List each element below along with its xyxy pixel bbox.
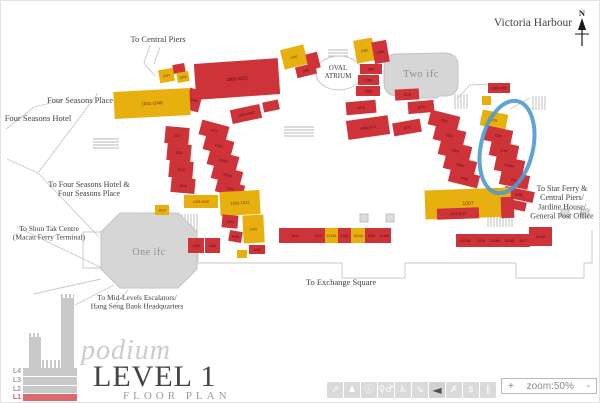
shop-block[interactable]	[529, 227, 552, 246]
shop-1014A[interactable]: 1014A	[351, 228, 365, 243]
shop-1096-1097[interactable]: 1096-1097	[488, 83, 510, 93]
shop-1089[interactable]: 1089	[356, 86, 380, 96]
logo-colonnade	[42, 360, 61, 368]
shop-1011-1012[interactable]: 1011-1012	[437, 207, 479, 219]
shop-1036[interactable]: 1036	[249, 245, 265, 254]
shop-1014[interactable]: 1014	[338, 228, 351, 243]
shop-block[interactable]	[194, 58, 280, 100]
shop-block[interactable]	[155, 205, 169, 215]
shop-1078[interactable]: 1078	[395, 88, 420, 100]
restroom-icon[interactable]: ♀♂	[378, 382, 394, 398]
shop-block[interactable]	[392, 119, 422, 137]
shop-block[interactable]	[158, 68, 175, 83]
shop-1031-1032[interactable]: 1031-1032	[219, 190, 260, 216]
level-l2[interactable]: L2	[7, 386, 21, 394]
logo-short-tower	[29, 337, 41, 368]
logo-short-tower-crown	[29, 333, 41, 337]
label-four-seasons-place: Four Seasons Place	[47, 95, 113, 105]
shop-block[interactable]	[176, 71, 190, 83]
shop-block[interactable]	[358, 75, 379, 85]
accessibility-icon[interactable]: ♿	[395, 382, 411, 398]
shop-1033[interactable]: 1033	[221, 214, 238, 228]
level-l1-bar[interactable]	[23, 394, 77, 401]
facility-toolbar: ⇗♟ⓘ♀♂♿⇘◄✗$∥	[327, 382, 496, 398]
shop-block[interactable]	[205, 238, 220, 253]
shop-1040[interactable]: 1040	[205, 238, 220, 253]
shop-1059-1062[interactable]: 1059-1062	[230, 104, 262, 124]
kiosk-square	[386, 214, 394, 222]
shop-block[interactable]	[395, 88, 420, 100]
shop-1076[interactable]: 1076	[345, 100, 376, 116]
label-to-central-piers: To Central Piers	[130, 34, 185, 44]
shop-block[interactable]	[482, 96, 491, 105]
shop-1010[interactable]: 1010	[155, 205, 169, 215]
logo-tall-tower	[61, 298, 74, 368]
level-l2-bar[interactable]	[23, 386, 77, 393]
shop-1041-1048[interactable]: 1041-1048	[113, 88, 190, 119]
shop-block[interactable]	[237, 250, 247, 258]
shop-block[interactable]	[221, 214, 238, 228]
escalator-down-icon[interactable]: ⇘	[412, 382, 428, 398]
atm-icon[interactable]: $	[463, 382, 479, 398]
shop-block[interactable]	[228, 230, 243, 243]
shop-1057[interactable]: 1057	[158, 68, 175, 83]
shop-1016A[interactable]: 1016A	[488, 234, 502, 247]
shop-1039[interactable]: 1039	[188, 238, 204, 253]
page-title: LEVEL 1	[93, 360, 216, 394]
shop-block[interactable]	[488, 83, 510, 93]
one-ifc-label: One ifc	[132, 247, 165, 258]
shop-1058[interactable]: 1058	[176, 71, 190, 83]
level-l4-bar[interactable]	[23, 368, 77, 376]
shop-1025-1030[interactable]: 1025-1030	[184, 195, 218, 208]
zoom-level-label: zoom:50%	[520, 381, 581, 392]
lift-icon[interactable]: ✗	[446, 382, 462, 398]
shop-1016[interactable]: 1016	[474, 234, 488, 247]
shop-1035[interactable]: 1035	[242, 214, 264, 243]
label-to-star-ferry: To Star Ferry &Central Piers/Jardine Hou…	[530, 184, 594, 221]
compass-n-label: N	[579, 8, 586, 18]
shop-block[interactable]	[113, 88, 190, 119]
shop-1088[interactable]: 1088	[358, 75, 379, 85]
shop-block[interactable]	[378, 228, 391, 243]
shop-1021[interactable]: 1021	[164, 126, 189, 145]
shop-unit[interactable]	[501, 197, 515, 218]
zoom-in-button[interactable]: +	[502, 381, 520, 392]
zoom-out-button[interactable]: -	[581, 381, 596, 392]
shop-block[interactable]	[242, 214, 264, 243]
shop-1013[interactable]: 1013	[311, 228, 325, 243]
shop-unit[interactable]	[237, 250, 247, 258]
shop-unit[interactable]	[262, 99, 280, 112]
shop-block[interactable]	[325, 228, 338, 243]
floor-plan-subtitle: FLOOR PLAN	[123, 390, 231, 402]
level-l3-bar[interactable]	[23, 377, 77, 385]
shop-block[interactable]	[338, 228, 351, 243]
shop-block[interactable]	[166, 143, 191, 162]
shop-block[interactable]	[502, 234, 516, 247]
shop-block[interactable]	[230, 104, 262, 124]
gates-icon[interactable]: ∥	[480, 382, 496, 398]
central-piers-bridge-path	[144, 45, 160, 76]
shop-block[interactable]	[501, 197, 515, 218]
shop-block[interactable]	[184, 195, 218, 208]
shop-block[interactable]	[168, 160, 193, 179]
level-l1[interactable]: L1	[7, 394, 21, 402]
stairs-icon	[533, 96, 545, 110]
shop-block[interactable]	[356, 86, 380, 96]
zoom-control: + zoom:50% -	[501, 378, 597, 394]
north-arrow: N	[575, 8, 589, 46]
shop-block[interactable]	[346, 115, 390, 140]
two-ifc-label: Two ifc	[403, 69, 439, 80]
stairs-icon	[455, 94, 467, 109]
shop-1016B[interactable]: 1016B	[502, 234, 516, 247]
shop-1079[interactable]: 1079	[408, 100, 435, 114]
label-four-seasons-hotel: Four Seasons Hotel	[5, 113, 72, 123]
shop-1019[interactable]: 1019	[168, 160, 193, 179]
shop-1069-1071[interactable]: 1069-1071	[346, 115, 390, 140]
shop-block[interactable]	[516, 234, 530, 247]
stairs-icon	[93, 139, 119, 148]
info-icon[interactable]: ⓘ	[361, 382, 377, 398]
stairs-icon	[284, 127, 314, 136]
people-icon[interactable]: ♟	[344, 382, 360, 398]
shop-block[interactable]	[311, 228, 325, 243]
shop-1020[interactable]: 1020	[166, 143, 191, 162]
shop-block[interactable]	[353, 38, 376, 64]
escalator-up-icon[interactable]: ⇗	[327, 382, 343, 398]
you-are-here-icon[interactable]: ◄	[429, 382, 445, 398]
shop-1063-1072[interactable]: 1063-1072	[194, 58, 280, 100]
shop-block[interactable]	[360, 64, 382, 74]
shop-block[interactable]	[437, 207, 479, 219]
shop-1017A[interactable]: 1017A	[529, 227, 552, 246]
shop-1018[interactable]: 1018	[170, 177, 195, 194]
shop-block[interactable]	[188, 238, 204, 253]
shop-block[interactable]	[219, 190, 260, 216]
shop-block[interactable]	[164, 126, 189, 145]
label-victoria-harbour: Victoria Harbour	[494, 17, 572, 29]
shop-1015A[interactable]: 1015A	[378, 228, 391, 243]
shop-block[interactable]	[456, 234, 474, 247]
shop-block[interactable]	[279, 228, 311, 243]
shop-unit[interactable]	[482, 96, 491, 105]
level-l3[interactable]: L3	[7, 377, 21, 385]
shop-1073[interactable]: 1073	[392, 119, 422, 137]
floor-plan-page: Two ifc One ifc 1057105810491063-1072104…	[0, 0, 600, 403]
kiosk-square	[360, 214, 368, 222]
shop-block[interactable]	[351, 228, 365, 243]
shop-1015[interactable]: 1015	[365, 228, 378, 243]
compass-needle-icon	[578, 18, 586, 30]
shop-1017[interactable]: 1017	[516, 234, 530, 247]
shop-1087[interactable]: 1087	[360, 64, 382, 74]
shop-block[interactable]	[488, 234, 502, 247]
label-to-exchange-square: To Exchange Square	[306, 277, 376, 287]
shop-1085[interactable]: 1085	[353, 38, 376, 64]
shop-block[interactable]	[474, 234, 488, 247]
one-ifc-annex-path	[83, 232, 101, 268]
label-to-four-seasons: To Four Seasons Hotel &Four Seasons Plac…	[48, 180, 130, 198]
label-to-shun-tak: To Shun Tak Centre(Macau Ferry Terminal)	[13, 224, 86, 242]
logo-tall-tower-crown	[61, 294, 74, 298]
shop-1034[interactable]: 1034	[228, 230, 243, 243]
label-to-mid-levels: To Mid-Levels Escalators/Hang Seng Bank …	[91, 293, 184, 311]
shop-1015B[interactable]: 1015B	[456, 234, 474, 247]
shop-block[interactable]	[249, 245, 265, 254]
shop-block[interactable]	[408, 100, 435, 114]
shop-block[interactable]	[365, 228, 378, 243]
shop-block[interactable]	[170, 177, 195, 194]
shop-1013A[interactable]: 1013A	[325, 228, 338, 243]
shop-block[interactable]	[262, 99, 280, 112]
shop-1012[interactable]: 1012	[279, 228, 311, 243]
level-l4[interactable]: L4	[7, 368, 21, 376]
shop-block[interactable]	[345, 100, 376, 116]
